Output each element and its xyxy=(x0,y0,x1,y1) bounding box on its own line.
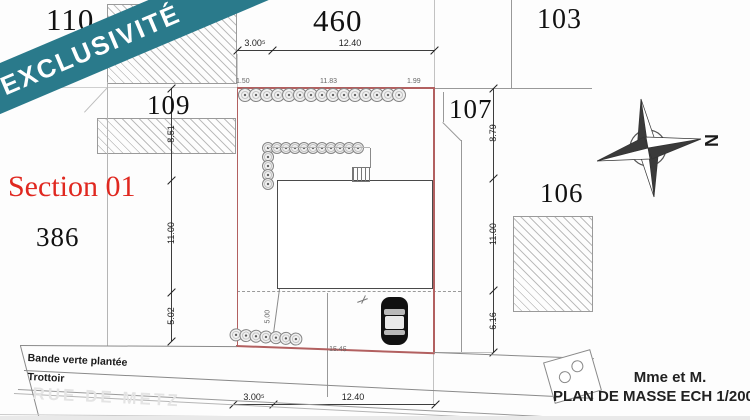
dim-left-c: 5.02 xyxy=(166,296,176,336)
dim-tree-right: 1.99 xyxy=(407,78,421,85)
green-band-label: Bande verte plantée xyxy=(27,352,127,369)
bush-column-garden xyxy=(262,152,274,188)
plan-line xyxy=(433,352,434,404)
plan-line xyxy=(434,88,592,89)
plot-boundary-right xyxy=(433,87,435,352)
plan-line xyxy=(268,147,370,148)
tree-row-north xyxy=(239,88,404,102)
plot-boundary-left xyxy=(237,87,239,346)
parcel-label-103: 103 xyxy=(537,4,582,36)
parcel-label-107: 107 xyxy=(449,94,493,125)
parcel-label-386: 386 xyxy=(36,222,80,253)
road-surface xyxy=(0,416,750,420)
plan-line xyxy=(434,0,435,87)
bush-row-frontage xyxy=(230,328,301,346)
dim-tree-mid: 11.83 xyxy=(320,78,337,85)
tree-icon xyxy=(288,332,302,346)
parcel-label-106: 106 xyxy=(540,178,584,209)
tree-icon xyxy=(352,142,364,154)
manhole-icon xyxy=(557,370,572,385)
north-label: N xyxy=(700,134,721,147)
dim-right-b: 11.00 xyxy=(488,214,498,254)
boundary-107-106 xyxy=(461,140,462,352)
house-footprint xyxy=(277,180,433,289)
parcel-label-460: 460 xyxy=(313,3,363,39)
dim-path: 5.00 xyxy=(265,304,272,324)
boundary-103 xyxy=(511,0,512,88)
section-label: Section 01 xyxy=(8,170,136,204)
boundary-107 xyxy=(443,92,444,122)
dim-top-a: 3.00⁵ xyxy=(238,38,272,48)
car-icon xyxy=(381,297,408,345)
dim-frontage: 15.45 xyxy=(329,346,347,354)
car-roof xyxy=(385,316,404,329)
road-edge xyxy=(20,345,237,347)
tree-icon xyxy=(262,178,274,190)
plan-line xyxy=(370,148,371,168)
parcel-label-109: 109 xyxy=(147,90,191,121)
rear-window xyxy=(384,330,405,335)
setback-dashed-line xyxy=(237,291,461,292)
plan-title: PLAN DE MASSE ECH 1/200 xyxy=(553,388,749,405)
driveway-line xyxy=(327,293,328,397)
street-name: RUE DE METZ xyxy=(32,384,181,411)
owner-label: Mme et M. xyxy=(600,369,740,386)
windshield xyxy=(384,309,405,315)
site-plan: 3.00⁵ 12.40 3.00⁵ 12.40 8.51 11.00 5.02 … xyxy=(0,0,750,420)
dim-top-b: 12.40 xyxy=(330,38,370,48)
hatched-area-106 xyxy=(513,216,593,312)
dim-tree-left: 1.50 xyxy=(236,78,250,85)
boundary-386 xyxy=(107,82,108,346)
entrance-steps xyxy=(352,167,370,182)
bush-row-garden xyxy=(263,142,362,154)
dim-bottom-b: 12.40 xyxy=(333,392,373,402)
dimension-line-top xyxy=(237,50,434,51)
tree-icon xyxy=(392,88,406,102)
dim-right-c: 6.16 xyxy=(488,301,498,341)
compass-rose-icon xyxy=(597,93,722,208)
plan-line xyxy=(84,88,107,113)
sidewalk-label: Trottoir xyxy=(27,371,64,385)
plant-marker xyxy=(357,295,369,305)
manhole-icon xyxy=(570,359,585,374)
dim-left-b: 11.00 xyxy=(166,213,176,253)
